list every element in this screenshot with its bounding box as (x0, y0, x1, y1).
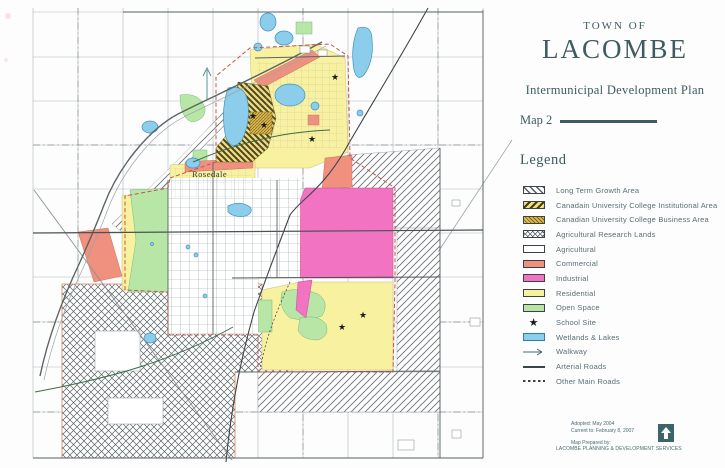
title-town-of: TOWN OF (515, 20, 715, 32)
legend-swatch (523, 274, 545, 282)
legend-item-label: Long Term Growth Area (556, 186, 639, 195)
arrow-right-icon (522, 348, 546, 356)
legend-item: Industrial (520, 271, 725, 286)
legend-swatch (523, 201, 545, 209)
title-rule (560, 120, 657, 123)
legend-item-label: Canadian University College Business Are… (556, 215, 709, 224)
legend-item-label: Agricultural (556, 245, 596, 254)
legend-heading: Legend (520, 152, 725, 169)
map-label-rosedale: Rosedale (192, 169, 227, 179)
legend-items: Long Term Growth AreaCanadain University… (520, 183, 725, 389)
legend-item: Other Main Roads (520, 374, 725, 389)
map-canvas: ★ ★ ★ ★ ★ ★ Rosedale (0, 0, 515, 468)
star-icon: ★ (331, 73, 339, 83)
legend-item-label: Arterial Roads (556, 362, 606, 371)
legend-swatch (523, 333, 545, 341)
footer-agency: LACOMBE PLANNING & DEVELOPMENT SERVICES (556, 446, 725, 453)
legend-item-label: Commercial (556, 259, 598, 268)
legend-item-label: Industrial (556, 274, 588, 283)
legend-item: Agricultural Research Lands (520, 227, 725, 242)
legend-swatch (523, 230, 545, 238)
legend-item: Arterial Roads (520, 359, 725, 374)
info-panel: TOWN OF LACOMBE Intermunicipal Developme… (515, 0, 725, 468)
legend-swatch (523, 289, 545, 297)
star-icon: ★ (359, 311, 367, 321)
map-footer: Adopted: May 2004 Current to: February 8… (571, 421, 725, 453)
legend: Legend Long Term Growth AreaCanadain Uni… (520, 152, 725, 389)
title-town-name: LACOMBE (515, 34, 715, 65)
legend-swatch (523, 260, 545, 268)
legend-swatch (523, 216, 545, 224)
map-number-row: Map 2 (520, 113, 720, 128)
legend-swatch (523, 186, 545, 194)
legend-item-label: School Site (556, 318, 596, 327)
legend-item: Walkway (520, 345, 725, 360)
legend-item: Canadian University College Business Are… (520, 212, 725, 227)
legend-item: Open Space (520, 301, 725, 316)
legend-item-label: Other Main Roads (556, 377, 620, 386)
title-block: TOWN OF LACOMBE Intermunicipal Developme… (515, 20, 715, 98)
scan-smudge (4, 58, 8, 62)
legend-item: Residential (520, 286, 725, 301)
page: ★ ★ ★ ★ ★ ★ Rosedale TOWN OF LACOMBE Int… (0, 0, 725, 468)
star-icon: ★ (260, 121, 268, 131)
legend-swatch (523, 304, 545, 312)
footer-adopted: Adopted: May 2004 (571, 421, 725, 428)
legend-item-label: Walkway (556, 347, 587, 356)
legend-item: Canadain University College Institutiona… (520, 198, 725, 213)
star-icon: ★ (249, 112, 257, 122)
star-icon: ★ (338, 323, 346, 333)
dashed-line-swatch (523, 380, 545, 382)
solid-line-swatch (523, 366, 545, 368)
star-icon: ★ (308, 135, 316, 145)
legend-item: Commercial (520, 256, 725, 271)
legend-item: ★School Site (520, 315, 725, 330)
legend-item: Wetlands & Lakes (520, 330, 725, 345)
legend-item-label: Residential (556, 289, 595, 298)
plan-title: Intermunicipal Development Plan (515, 83, 715, 98)
map-number: Map 2 (520, 113, 552, 127)
lacombe-logo (658, 424, 674, 442)
legend-item-label: Canadain University College Institutiona… (556, 201, 717, 210)
legend-item-label: Agricultural Research Lands (556, 230, 656, 239)
footer-current-to: Current to: February 8, 2007 (571, 428, 725, 435)
footer-prepared-by: Map Prepared by: (571, 440, 725, 447)
legend-item: Agricultural (520, 242, 725, 257)
legend-item-label: Wetlands & Lakes (556, 333, 620, 342)
legend-item: Long Term Growth Area (520, 183, 725, 198)
scan-smudge (5, 13, 11, 19)
up-arrow-icon (660, 426, 672, 440)
legend-swatch (523, 245, 545, 253)
star-icon: ★ (529, 319, 539, 327)
legend-item-label: Open Space (556, 303, 600, 312)
